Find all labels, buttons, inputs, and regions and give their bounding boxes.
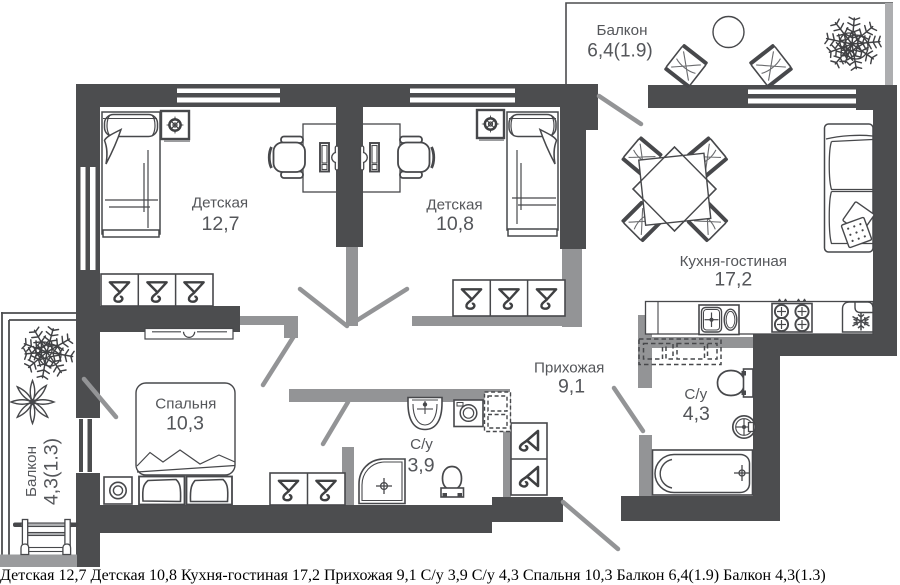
svg-text:10,3: 10,3 — [166, 413, 204, 435]
svg-text:Детская: Детская — [192, 195, 248, 212]
svg-text:9,1: 9,1 — [558, 376, 585, 398]
svg-text:17,2: 17,2 — [714, 269, 752, 291]
svg-text:С/у: С/у — [410, 436, 433, 453]
svg-text:4,3: 4,3 — [683, 403, 710, 425]
svg-text:3,9: 3,9 — [407, 455, 434, 477]
svg-text:12,7: 12,7 — [202, 213, 240, 235]
svg-text:10,8: 10,8 — [436, 213, 474, 235]
svg-text:Кухня-гостиная: Кухня-гостиная — [680, 253, 787, 270]
svg-text:Балкон: Балкон — [23, 446, 40, 497]
svg-text:Прихожая: Прихожая — [534, 360, 604, 377]
svg-text:4,3(1.3): 4,3(1.3) — [41, 438, 63, 505]
svg-text:С/у: С/у — [684, 386, 707, 403]
svg-text:Балкон: Балкон — [597, 22, 648, 39]
svg-text:Детская: Детская — [426, 197, 482, 214]
svg-text:6,4(1.9): 6,4(1.9) — [587, 40, 652, 61]
svg-text:Спальня: Спальня — [155, 396, 216, 413]
